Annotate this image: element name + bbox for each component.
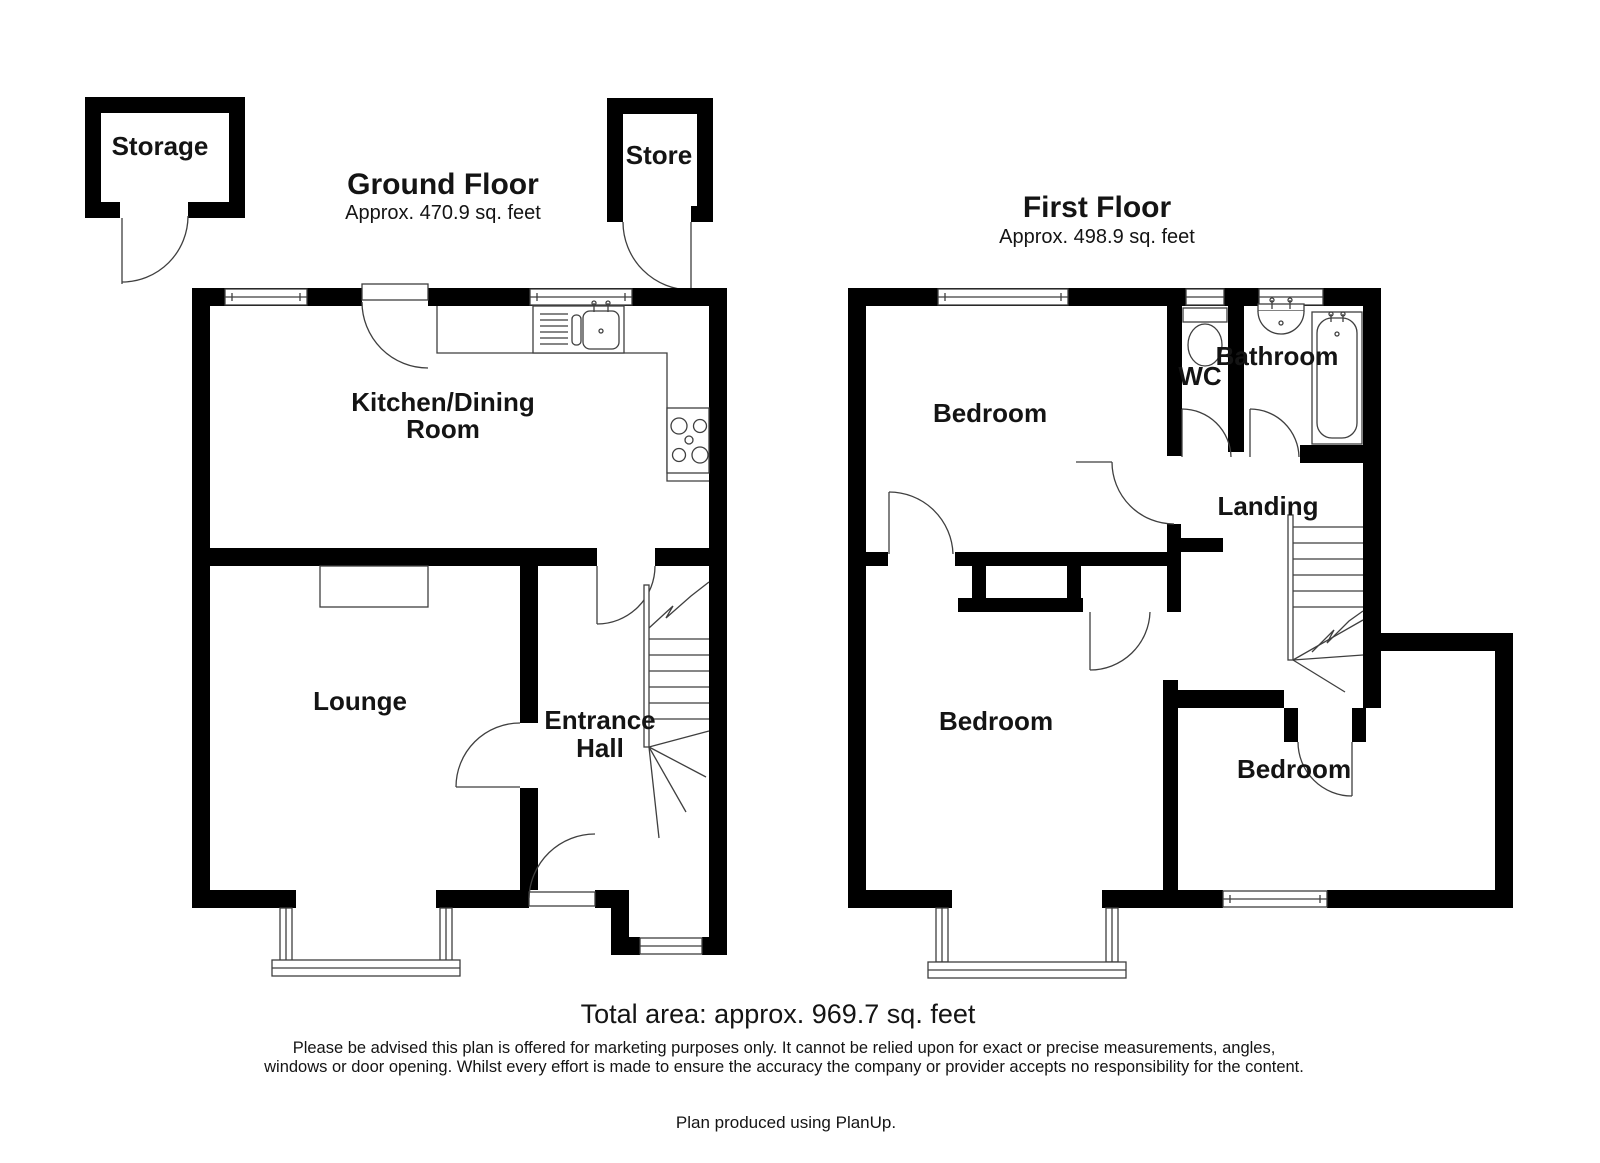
lounge-chimney-breast: [320, 566, 428, 607]
floorplan-page: Ground Floor Approx. 470.9 sq. feet Stor…: [0, 0, 1600, 1163]
ground-floor-title: Ground Floor: [347, 168, 539, 201]
credit-text: Plan produced using PlanUp.: [676, 1113, 896, 1132]
wc-door: [1182, 409, 1231, 457]
bathroom-window: [1259, 289, 1323, 305]
kitchen-sink: [533, 301, 624, 353]
store-room: [607, 98, 713, 290]
ground-floor-area: Approx. 470.9 sq. feet: [345, 202, 541, 224]
first-floor-stairs: [1288, 515, 1363, 692]
disclaimer-line1: Please be advised this plan is offered f…: [293, 1039, 1276, 1057]
landing-label: Landing: [1217, 491, 1318, 521]
disclaimer-line2: windows or door opening. Whilst every ef…: [263, 1058, 1304, 1076]
first-floor-area: Approx. 498.9 sq. feet: [999, 226, 1195, 248]
storage-label: Storage: [112, 131, 209, 161]
storage-door: [122, 216, 188, 284]
bedroom-left-label: Bedroom: [939, 706, 1053, 736]
stair-break-line: [649, 582, 709, 628]
lounge-bay-window: [272, 908, 460, 976]
kitchen-exterior-door: [362, 284, 428, 368]
lounge-door: [456, 723, 520, 787]
hall-label-line1: Entrance: [544, 705, 655, 735]
footer: Total area: approx. 969.7 sq. feet Pleas…: [263, 999, 1304, 1132]
landing-corridor-door: [1076, 462, 1174, 524]
front-door: [529, 834, 595, 906]
first-floor-plan: First Floor Approx. 498.9 sq. feet Bedro…: [848, 191, 1513, 978]
bathtub: [1312, 312, 1362, 444]
bedroom-top-label: Bedroom: [933, 398, 1047, 428]
bedroom-left-door: [1090, 612, 1150, 670]
bedroom-left-bay-window: [928, 908, 1126, 978]
bathroom-sink: [1258, 298, 1304, 334]
hall-side-window: [640, 938, 702, 954]
stair-break-line: [1312, 611, 1363, 652]
kitchen-hob: [667, 408, 709, 473]
bedroom-right-window: [1223, 891, 1327, 907]
kitchen-label-line2: Room: [406, 414, 480, 444]
bedroom-top-door: [889, 492, 953, 554]
store-label: Store: [626, 140, 692, 170]
wc-window: [1186, 289, 1224, 305]
bedroom-top-window: [938, 289, 1068, 305]
total-area-text: Total area: approx. 969.7 sq. feet: [581, 999, 976, 1029]
kitchen-window-right: [530, 289, 632, 305]
kitchen-window-left: [225, 289, 307, 305]
first-floor-title: First Floor: [1023, 191, 1172, 224]
bedroom-right-label: Bedroom: [1237, 754, 1351, 784]
kitchen-label-line1: Kitchen/Dining: [351, 387, 534, 417]
floorplan-drawing: Ground Floor Approx. 470.9 sq. feet Stor…: [0, 0, 1600, 1163]
ground-floor-plan: Ground Floor Approx. 470.9 sq. feet Stor…: [85, 97, 727, 976]
lounge-label: Lounge: [313, 686, 407, 716]
store-door: [623, 222, 691, 290]
bathroom-door: [1250, 409, 1299, 457]
bathroom-label: Bathroom: [1216, 341, 1339, 371]
storage-room: [85, 97, 245, 284]
hall-label-line2: Hall: [576, 733, 624, 763]
